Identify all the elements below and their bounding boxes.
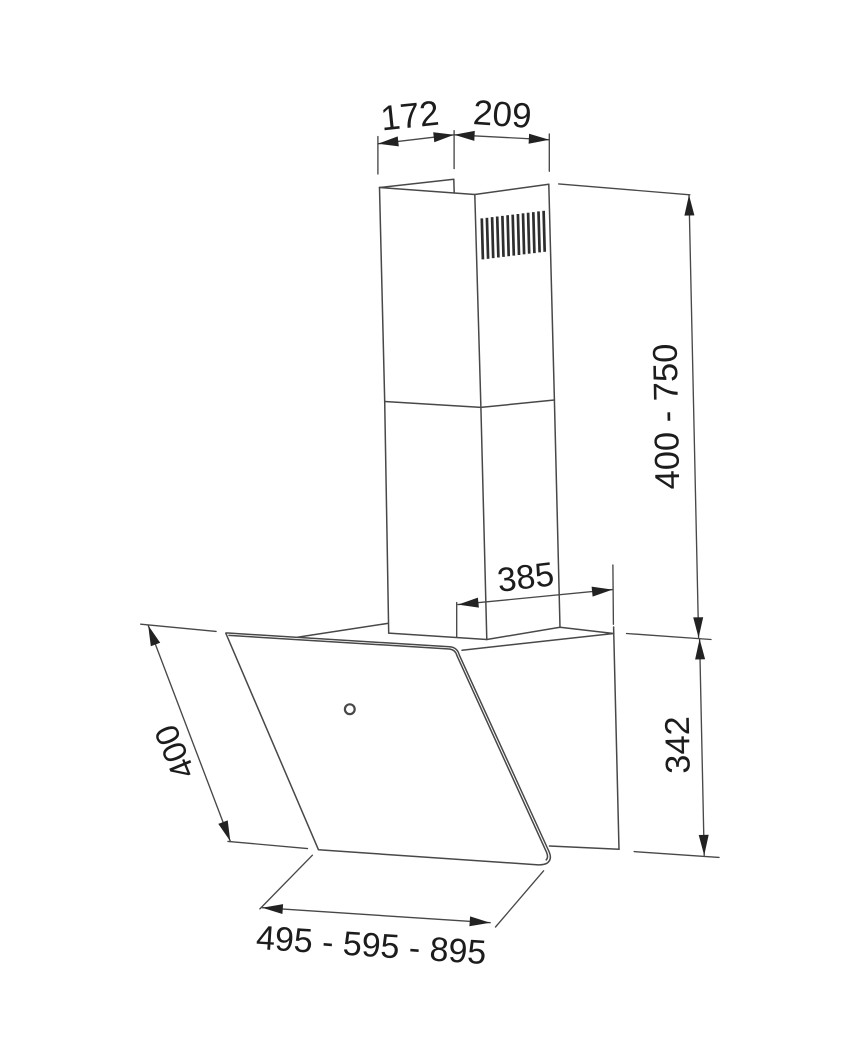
svg-text:172: 172 bbox=[379, 94, 441, 139]
svg-text:385: 385 bbox=[495, 555, 556, 600]
svg-text:400 - 750: 400 - 750 bbox=[647, 343, 688, 489]
svg-text:342: 342 bbox=[659, 716, 698, 774]
svg-text:495 - 595 - 895: 495 - 595 - 895 bbox=[255, 919, 488, 972]
svg-text:400: 400 bbox=[147, 720, 202, 785]
svg-text:209: 209 bbox=[472, 93, 533, 136]
